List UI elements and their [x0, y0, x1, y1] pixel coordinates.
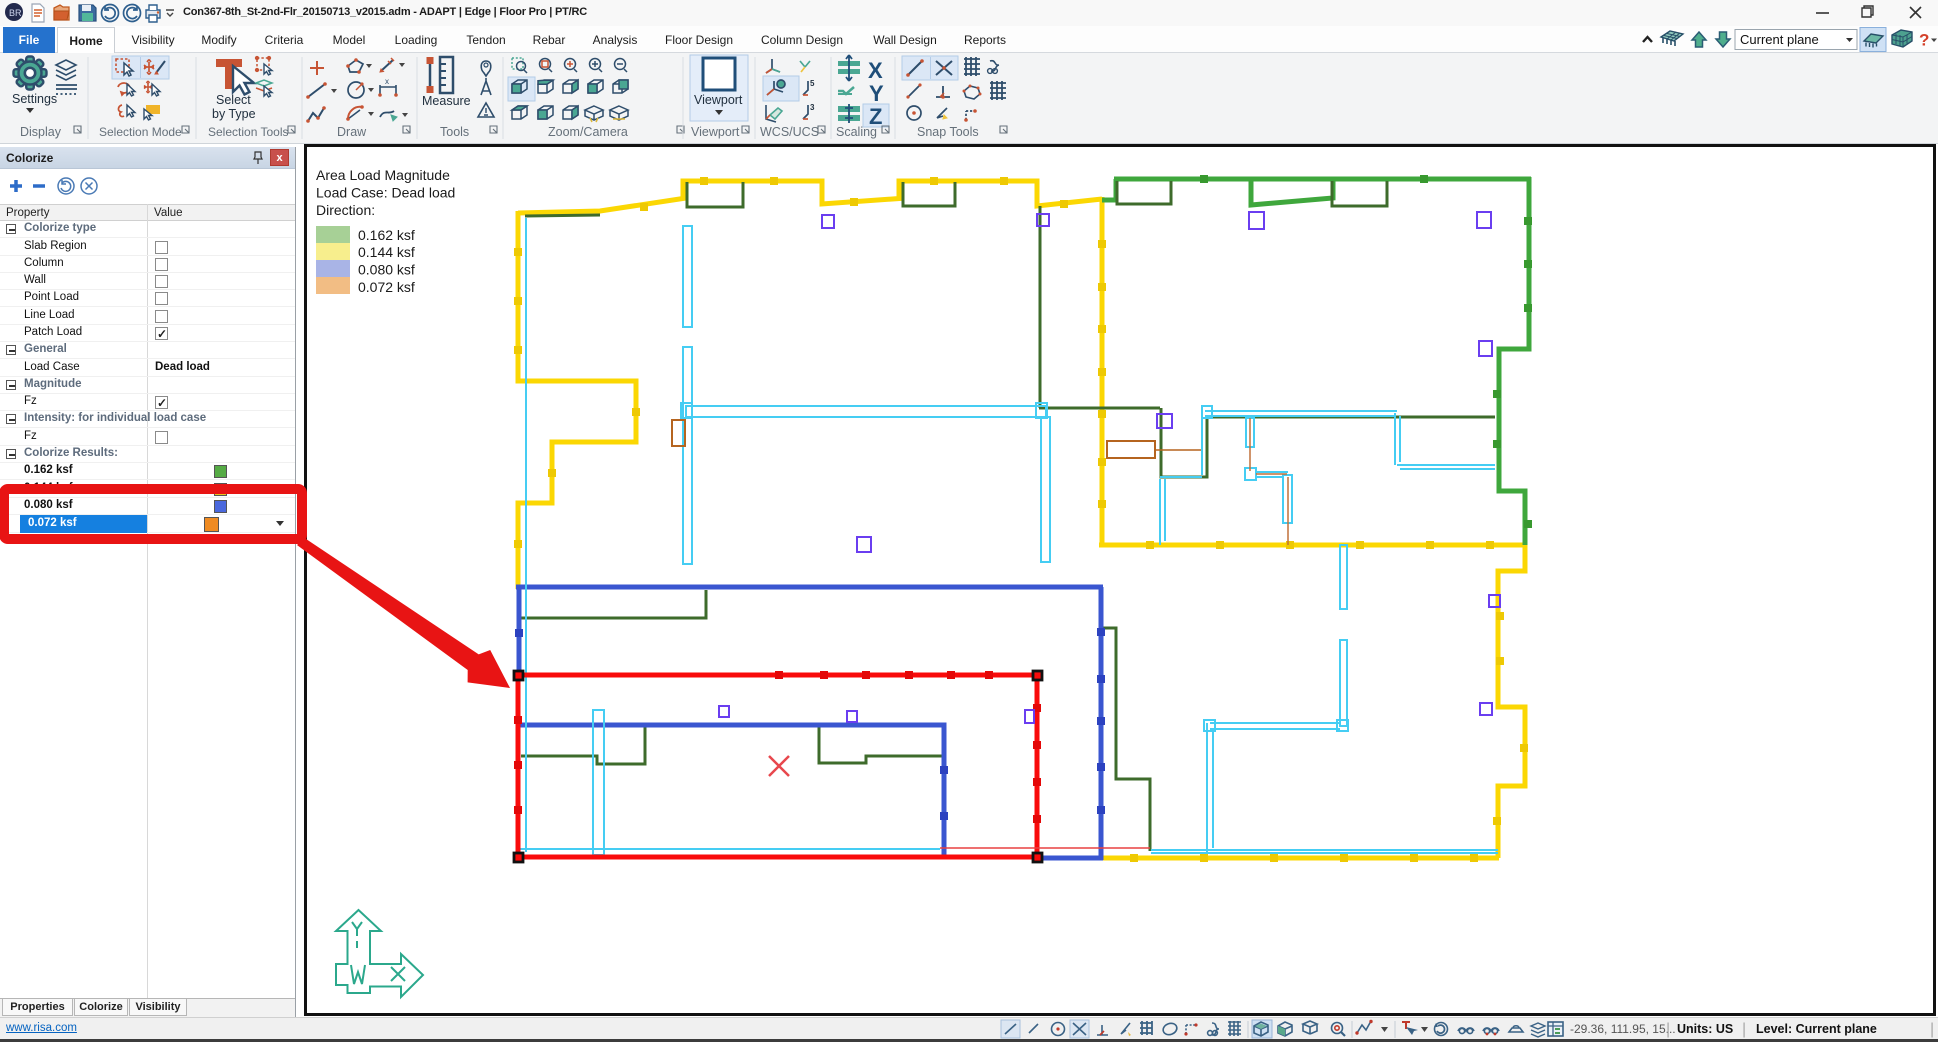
svg-text:x: x — [385, 77, 389, 86]
svg-text:Viewport: Viewport — [694, 93, 743, 107]
svg-text:BR: BR — [9, 8, 22, 18]
svg-text:5: 5 — [810, 79, 815, 88]
svg-text:Selection Mode: Selection Mode — [99, 125, 182, 139]
svg-text:0.072 ksf: 0.072 ksf — [358, 279, 415, 295]
svg-text:Area Load Magnitude: Area Load Magnitude — [316, 167, 450, 183]
svg-text:Display: Display — [20, 125, 62, 139]
svg-text:3: 3 — [810, 103, 815, 112]
svg-text:Snap Tools: Snap Tools — [917, 125, 979, 139]
svg-text:Measure: Measure — [422, 94, 471, 108]
svg-text:Direction:: Direction: — [316, 202, 375, 218]
svg-text:WCS/UCS: WCS/UCS — [760, 125, 819, 139]
svg-text:0.144 ksf: 0.144 ksf — [358, 244, 415, 260]
svg-text:Select: Select — [216, 93, 251, 107]
svg-text:Settings: Settings — [12, 92, 57, 106]
svg-text:?: ? — [1919, 31, 1929, 50]
svg-text:Viewport: Viewport — [691, 125, 740, 139]
svg-text:Zoom/Camera: Zoom/Camera — [548, 125, 628, 139]
svg-text:Scaling: Scaling — [836, 125, 877, 139]
svg-text:0.080 ksf: 0.080 ksf — [358, 262, 415, 278]
svg-text:Y: Y — [869, 81, 884, 106]
svg-text:Load Case: Dead load: Load Case: Dead load — [316, 185, 455, 201]
svg-text:Selection Tools: Selection Tools — [208, 125, 289, 139]
svg-text:X: X — [868, 58, 883, 83]
svg-text:by Type: by Type — [212, 107, 256, 121]
svg-text:Current plane: Current plane — [1740, 32, 1819, 47]
svg-text:Draw: Draw — [337, 125, 367, 139]
svg-text:0.162 ksf: 0.162 ksf — [358, 227, 415, 243]
svg-text:Tools: Tools — [440, 125, 469, 139]
